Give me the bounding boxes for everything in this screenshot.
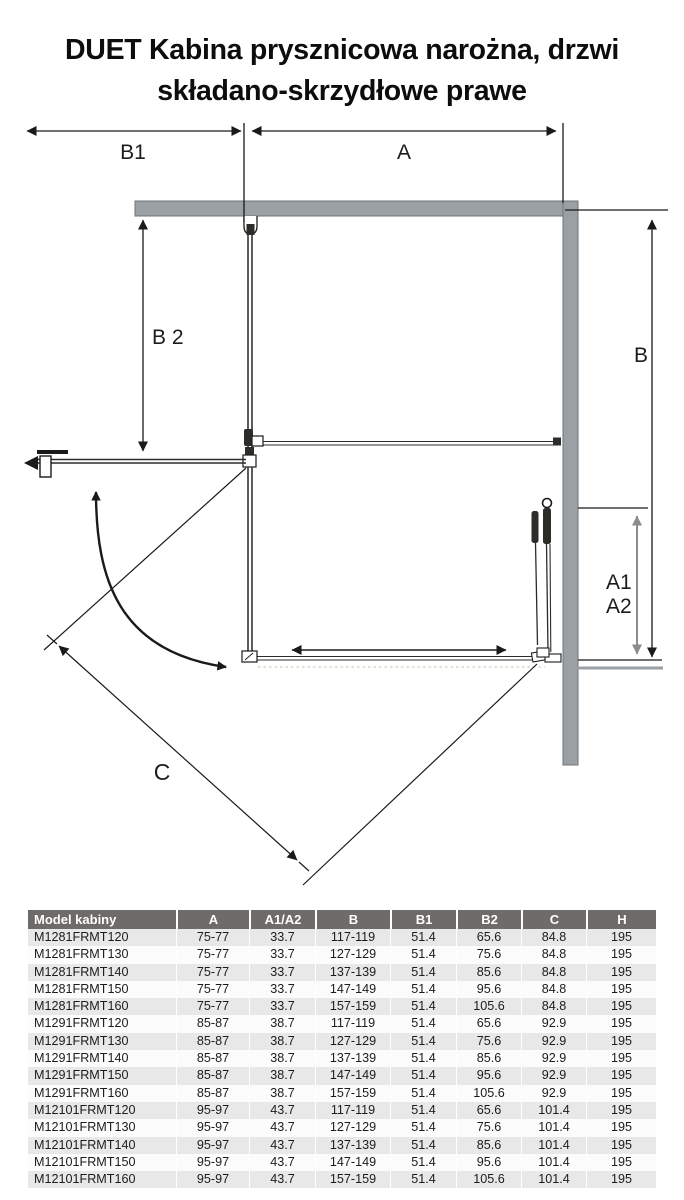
cell-h: 195 — [586, 1154, 656, 1171]
table-row: M12101FRMT130 95-97 43.7 127-129 51.4 75… — [28, 1119, 656, 1136]
cell-a: 85-87 — [176, 1015, 249, 1032]
wall-top — [135, 201, 578, 216]
cell-b2: 95.6 — [456, 1154, 521, 1171]
table-row: M1281FRMT140 75-77 33.7 137-139 51.4 85.… — [28, 964, 656, 981]
col-header-b: B — [315, 910, 390, 929]
cell-a: 95-97 — [176, 1102, 249, 1119]
cell-a1a2: 38.7 — [249, 1033, 315, 1050]
cell-a1a2: 38.7 — [249, 1050, 315, 1067]
right-door-diagonal — [303, 664, 537, 885]
col-header-h: H — [586, 910, 656, 929]
door-swing-arc-arrow — [96, 492, 226, 667]
cell-b2: 95.6 — [456, 1067, 521, 1084]
table-row: M1291FRMT120 85-87 38.7 117-119 51.4 65.… — [28, 1015, 656, 1032]
cell-c: 84.8 — [521, 946, 586, 963]
cell-model: M1281FRMT120 — [28, 929, 176, 946]
cell-b1: 51.4 — [390, 1033, 456, 1050]
wall-right — [563, 201, 578, 765]
cell-b: 147-149 — [315, 1154, 390, 1171]
cell-model: M1291FRMT140 — [28, 1050, 176, 1067]
label-c: C — [154, 759, 171, 785]
cell-a1a2: 33.7 — [249, 981, 315, 998]
col-header-b2: B2 — [456, 910, 521, 929]
cell-c: 101.4 — [521, 1102, 586, 1119]
cell-b1: 51.4 — [390, 1154, 456, 1171]
cell-b1: 51.4 — [390, 964, 456, 981]
cell-b1: 51.4 — [390, 998, 456, 1015]
table-row: M12101FRMT160 95-97 43.7 157-159 51.4 10… — [28, 1171, 656, 1188]
cell-a1a2: 38.7 — [249, 1067, 315, 1084]
cell-a: 75-77 — [176, 981, 249, 998]
cell-model: M1291FRMT150 — [28, 1067, 176, 1084]
cell-h: 195 — [586, 1015, 656, 1032]
col-header-model: Model kabiny — [28, 910, 176, 929]
cell-a: 95-97 — [176, 1119, 249, 1136]
label-b1: B1 — [120, 141, 146, 164]
label-b: B — [634, 344, 648, 367]
cell-a: 75-77 — [176, 998, 249, 1015]
cell-model: M1291FRMT160 — [28, 1085, 176, 1102]
cell-model: M1291FRMT120 — [28, 1015, 176, 1032]
folded-door — [532, 499, 552, 658]
cell-model: M12101FRMT140 — [28, 1137, 176, 1154]
cell-a: 85-87 — [176, 1050, 249, 1067]
cell-b: 137-139 — [315, 1050, 390, 1067]
cell-a1a2: 43.7 — [249, 1119, 315, 1136]
cell-model: M1281FRMT150 — [28, 981, 176, 998]
col-header-b1: B1 — [390, 910, 456, 929]
cell-h: 195 — [586, 998, 656, 1015]
cell-c: 92.9 — [521, 1085, 586, 1102]
cell-c: 92.9 — [521, 1015, 586, 1032]
cell-c: 101.4 — [521, 1137, 586, 1154]
open-door-panel — [24, 450, 246, 477]
cell-model: M12101FRMT130 — [28, 1119, 176, 1136]
cell-a1a2: 33.7 — [249, 998, 315, 1015]
cell-a1a2: 33.7 — [249, 946, 315, 963]
door-handle-knob — [40, 456, 51, 477]
cell-c: 84.8 — [521, 964, 586, 981]
cell-a1a2: 43.7 — [249, 1171, 315, 1188]
table-row: M1281FRMT120 75-77 33.7 117-119 51.4 65.… — [28, 929, 656, 946]
cell-h: 195 — [586, 1137, 656, 1154]
bottom-rail — [242, 651, 561, 667]
cell-model: M1281FRMT160 — [28, 998, 176, 1015]
cell-b: 137-139 — [315, 1137, 390, 1154]
cell-a: 95-97 — [176, 1137, 249, 1154]
cell-b1: 51.4 — [390, 1085, 456, 1102]
cell-b2: 65.6 — [456, 929, 521, 946]
product-spec-page: DUET Kabina prysznicowa narożna, drzwi s… — [0, 0, 684, 1200]
spec-table-body: M1281FRMT120 75-77 33.7 117-119 51.4 65.… — [28, 929, 656, 1188]
back-rail — [244, 429, 561, 455]
dimension-c — [47, 635, 309, 871]
cell-h: 195 — [586, 1033, 656, 1050]
label-a1: A1 — [606, 571, 632, 594]
cell-model: M12101FRMT150 — [28, 1154, 176, 1171]
cell-b2: 85.6 — [456, 1137, 521, 1154]
cell-b2: 105.6 — [456, 1085, 521, 1102]
table-row: M12101FRMT120 95-97 43.7 117-119 51.4 65… — [28, 1102, 656, 1119]
cell-a: 85-87 — [176, 1067, 249, 1084]
spec-table-header: Model kabiny A A1/A2 B B1 B2 C H — [28, 910, 656, 929]
cell-b: 127-129 — [315, 1033, 390, 1050]
cell-h: 195 — [586, 1067, 656, 1084]
cell-b: 157-159 — [315, 1171, 390, 1188]
cell-a: 95-97 — [176, 1154, 249, 1171]
cell-c: 101.4 — [521, 1119, 586, 1136]
label-b2: B 2 — [152, 326, 184, 349]
col-header-a1a2: A1/A2 — [249, 910, 315, 929]
cell-h: 195 — [586, 1171, 656, 1188]
cell-model: M1281FRMT140 — [28, 964, 176, 981]
cell-b1: 51.4 — [390, 1015, 456, 1032]
cell-b2: 105.6 — [456, 1171, 521, 1188]
col-header-c: C — [521, 910, 586, 929]
table-row: M1291FRMT160 85-87 38.7 157-159 51.4 105… — [28, 1085, 656, 1102]
table-row: M1281FRMT160 75-77 33.7 157-159 51.4 105… — [28, 998, 656, 1015]
cell-b: 137-139 — [315, 964, 390, 981]
spec-table: Model kabiny A A1/A2 B B1 B2 C H M1281FR… — [28, 910, 656, 1188]
cell-c: 84.8 — [521, 998, 586, 1015]
cell-h: 195 — [586, 1085, 656, 1102]
cell-b2: 75.6 — [456, 946, 521, 963]
cell-b1: 51.4 — [390, 1171, 456, 1188]
cell-b: 147-149 — [315, 1067, 390, 1084]
cell-h: 195 — [586, 981, 656, 998]
door-handle-bar — [37, 450, 68, 454]
label-a2: A2 — [606, 595, 632, 618]
table-row: M1281FRMT150 75-77 33.7 147-149 51.4 95.… — [28, 981, 656, 998]
cell-model: M12101FRMT160 — [28, 1171, 176, 1188]
cell-h: 195 — [586, 1102, 656, 1119]
cell-b: 147-149 — [315, 981, 390, 998]
cell-b1: 51.4 — [390, 1137, 456, 1154]
cell-a: 85-87 — [176, 1085, 249, 1102]
cell-model: M1281FRMT130 — [28, 946, 176, 963]
cell-b: 127-129 — [315, 1119, 390, 1136]
cell-b1: 51.4 — [390, 946, 456, 963]
cell-c: 92.9 — [521, 1050, 586, 1067]
table-row: M1291FRMT150 85-87 38.7 147-149 51.4 95.… — [28, 1067, 656, 1084]
cell-b: 157-159 — [315, 998, 390, 1015]
door-tip — [24, 456, 38, 470]
cell-b2: 85.6 — [456, 1050, 521, 1067]
front-edge — [243, 455, 256, 652]
cell-c: 92.9 — [521, 1033, 586, 1050]
cell-b: 157-159 — [315, 1085, 390, 1102]
cell-b2: 75.6 — [456, 1033, 521, 1050]
cell-a1a2: 43.7 — [249, 1137, 315, 1154]
cell-model: M1291FRMT130 — [28, 1033, 176, 1050]
cell-h: 195 — [586, 1050, 656, 1067]
cell-b2: 65.6 — [456, 1015, 521, 1032]
cell-a1a2: 33.7 — [249, 929, 315, 946]
cell-b1: 51.4 — [390, 929, 456, 946]
cell-a: 95-97 — [176, 1171, 249, 1188]
table-row: M1281FRMT130 75-77 33.7 127-129 51.4 75.… — [28, 946, 656, 963]
cell-a1a2: 38.7 — [249, 1085, 315, 1102]
table-row: M1291FRMT130 85-87 38.7 127-129 51.4 75.… — [28, 1033, 656, 1050]
fixed-side-panel — [244, 216, 257, 450]
cell-b2: 105.6 — [456, 998, 521, 1015]
folded-door-knob — [543, 499, 552, 508]
cell-a1a2: 33.7 — [249, 964, 315, 981]
cell-b1: 51.4 — [390, 981, 456, 998]
cell-c: 101.4 — [521, 1171, 586, 1188]
cell-c: 84.8 — [521, 929, 586, 946]
col-header-a: A — [176, 910, 249, 929]
cell-a1a2: 38.7 — [249, 1015, 315, 1032]
cell-h: 195 — [586, 964, 656, 981]
cell-c: 84.8 — [521, 981, 586, 998]
cell-a1a2: 43.7 — [249, 1154, 315, 1171]
cell-b2: 85.6 — [456, 964, 521, 981]
door-swing-position-line — [44, 468, 246, 650]
label-a: A — [397, 141, 411, 164]
cell-b1: 51.4 — [390, 1119, 456, 1136]
cell-a: 85-87 — [176, 1033, 249, 1050]
cell-b: 117-119 — [315, 1015, 390, 1032]
cell-b1: 51.4 — [390, 1050, 456, 1067]
cell-a1a2: 43.7 — [249, 1102, 315, 1119]
table-row: M1291FRMT140 85-87 38.7 137-139 51.4 85.… — [28, 1050, 656, 1067]
table-row: M12101FRMT140 95-97 43.7 137-139 51.4 85… — [28, 1137, 656, 1154]
cell-b2: 75.6 — [456, 1119, 521, 1136]
cell-b: 127-129 — [315, 946, 390, 963]
cell-b: 117-119 — [315, 929, 390, 946]
cell-a: 75-77 — [176, 946, 249, 963]
cell-b: 117-119 — [315, 1102, 390, 1119]
cell-c: 92.9 — [521, 1067, 586, 1084]
cell-model: M12101FRMT120 — [28, 1102, 176, 1119]
cell-b2: 95.6 — [456, 981, 521, 998]
table-row: M12101FRMT150 95-97 43.7 147-149 51.4 95… — [28, 1154, 656, 1171]
cell-b1: 51.4 — [390, 1067, 456, 1084]
cell-h: 195 — [586, 1119, 656, 1136]
cell-c: 101.4 — [521, 1154, 586, 1171]
cell-b2: 65.6 — [456, 1102, 521, 1119]
cell-b1: 51.4 — [390, 1102, 456, 1119]
cell-a: 75-77 — [176, 964, 249, 981]
cell-h: 195 — [586, 946, 656, 963]
cell-h: 195 — [586, 929, 656, 946]
cell-a: 75-77 — [176, 929, 249, 946]
